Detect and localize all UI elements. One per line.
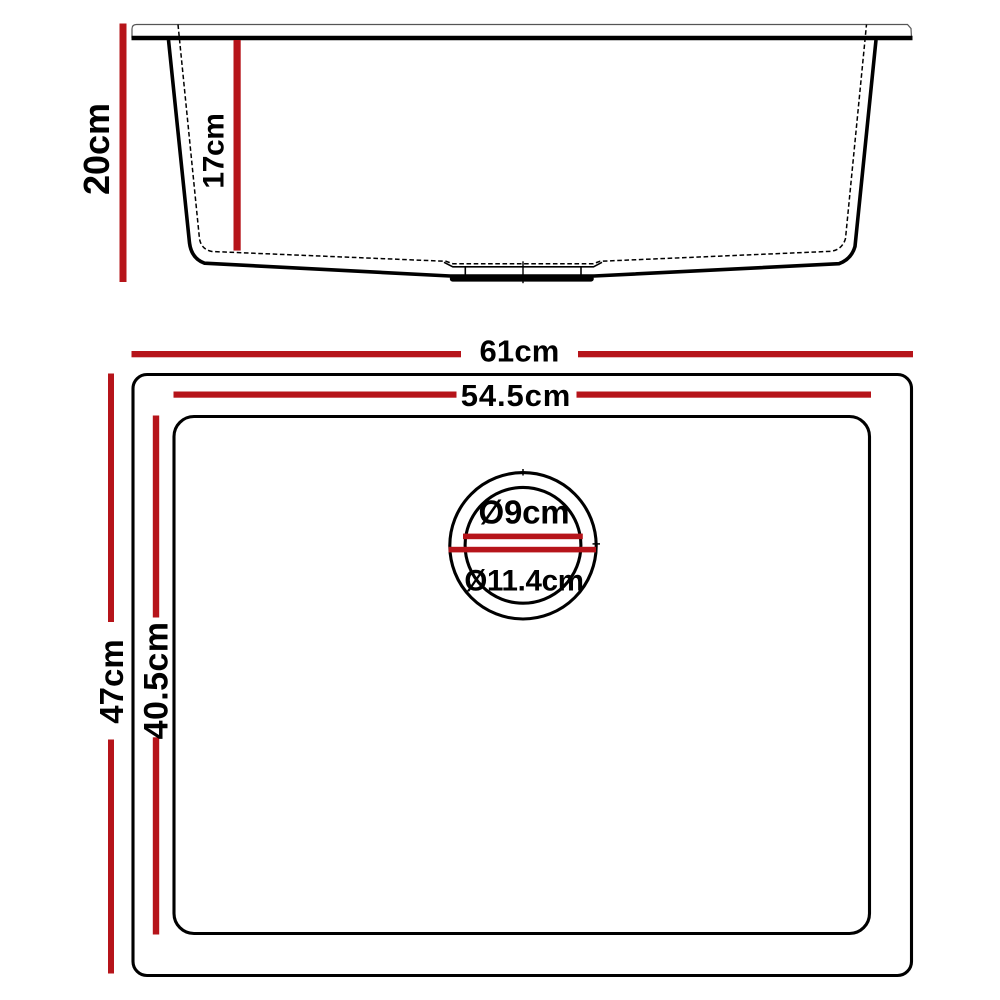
svg-text:40.5cm: 40.5cm [138, 622, 176, 740]
svg-text:47cm: 47cm [93, 639, 130, 723]
svg-text:20cm: 20cm [76, 103, 117, 195]
svg-text:54.5cm: 54.5cm [461, 378, 572, 413]
svg-text:17cm: 17cm [198, 113, 231, 188]
svg-text:Ø11.4cm: Ø11.4cm [464, 565, 583, 598]
svg-text:61cm: 61cm [479, 334, 559, 369]
svg-text:Ø9cm: Ø9cm [479, 494, 570, 531]
